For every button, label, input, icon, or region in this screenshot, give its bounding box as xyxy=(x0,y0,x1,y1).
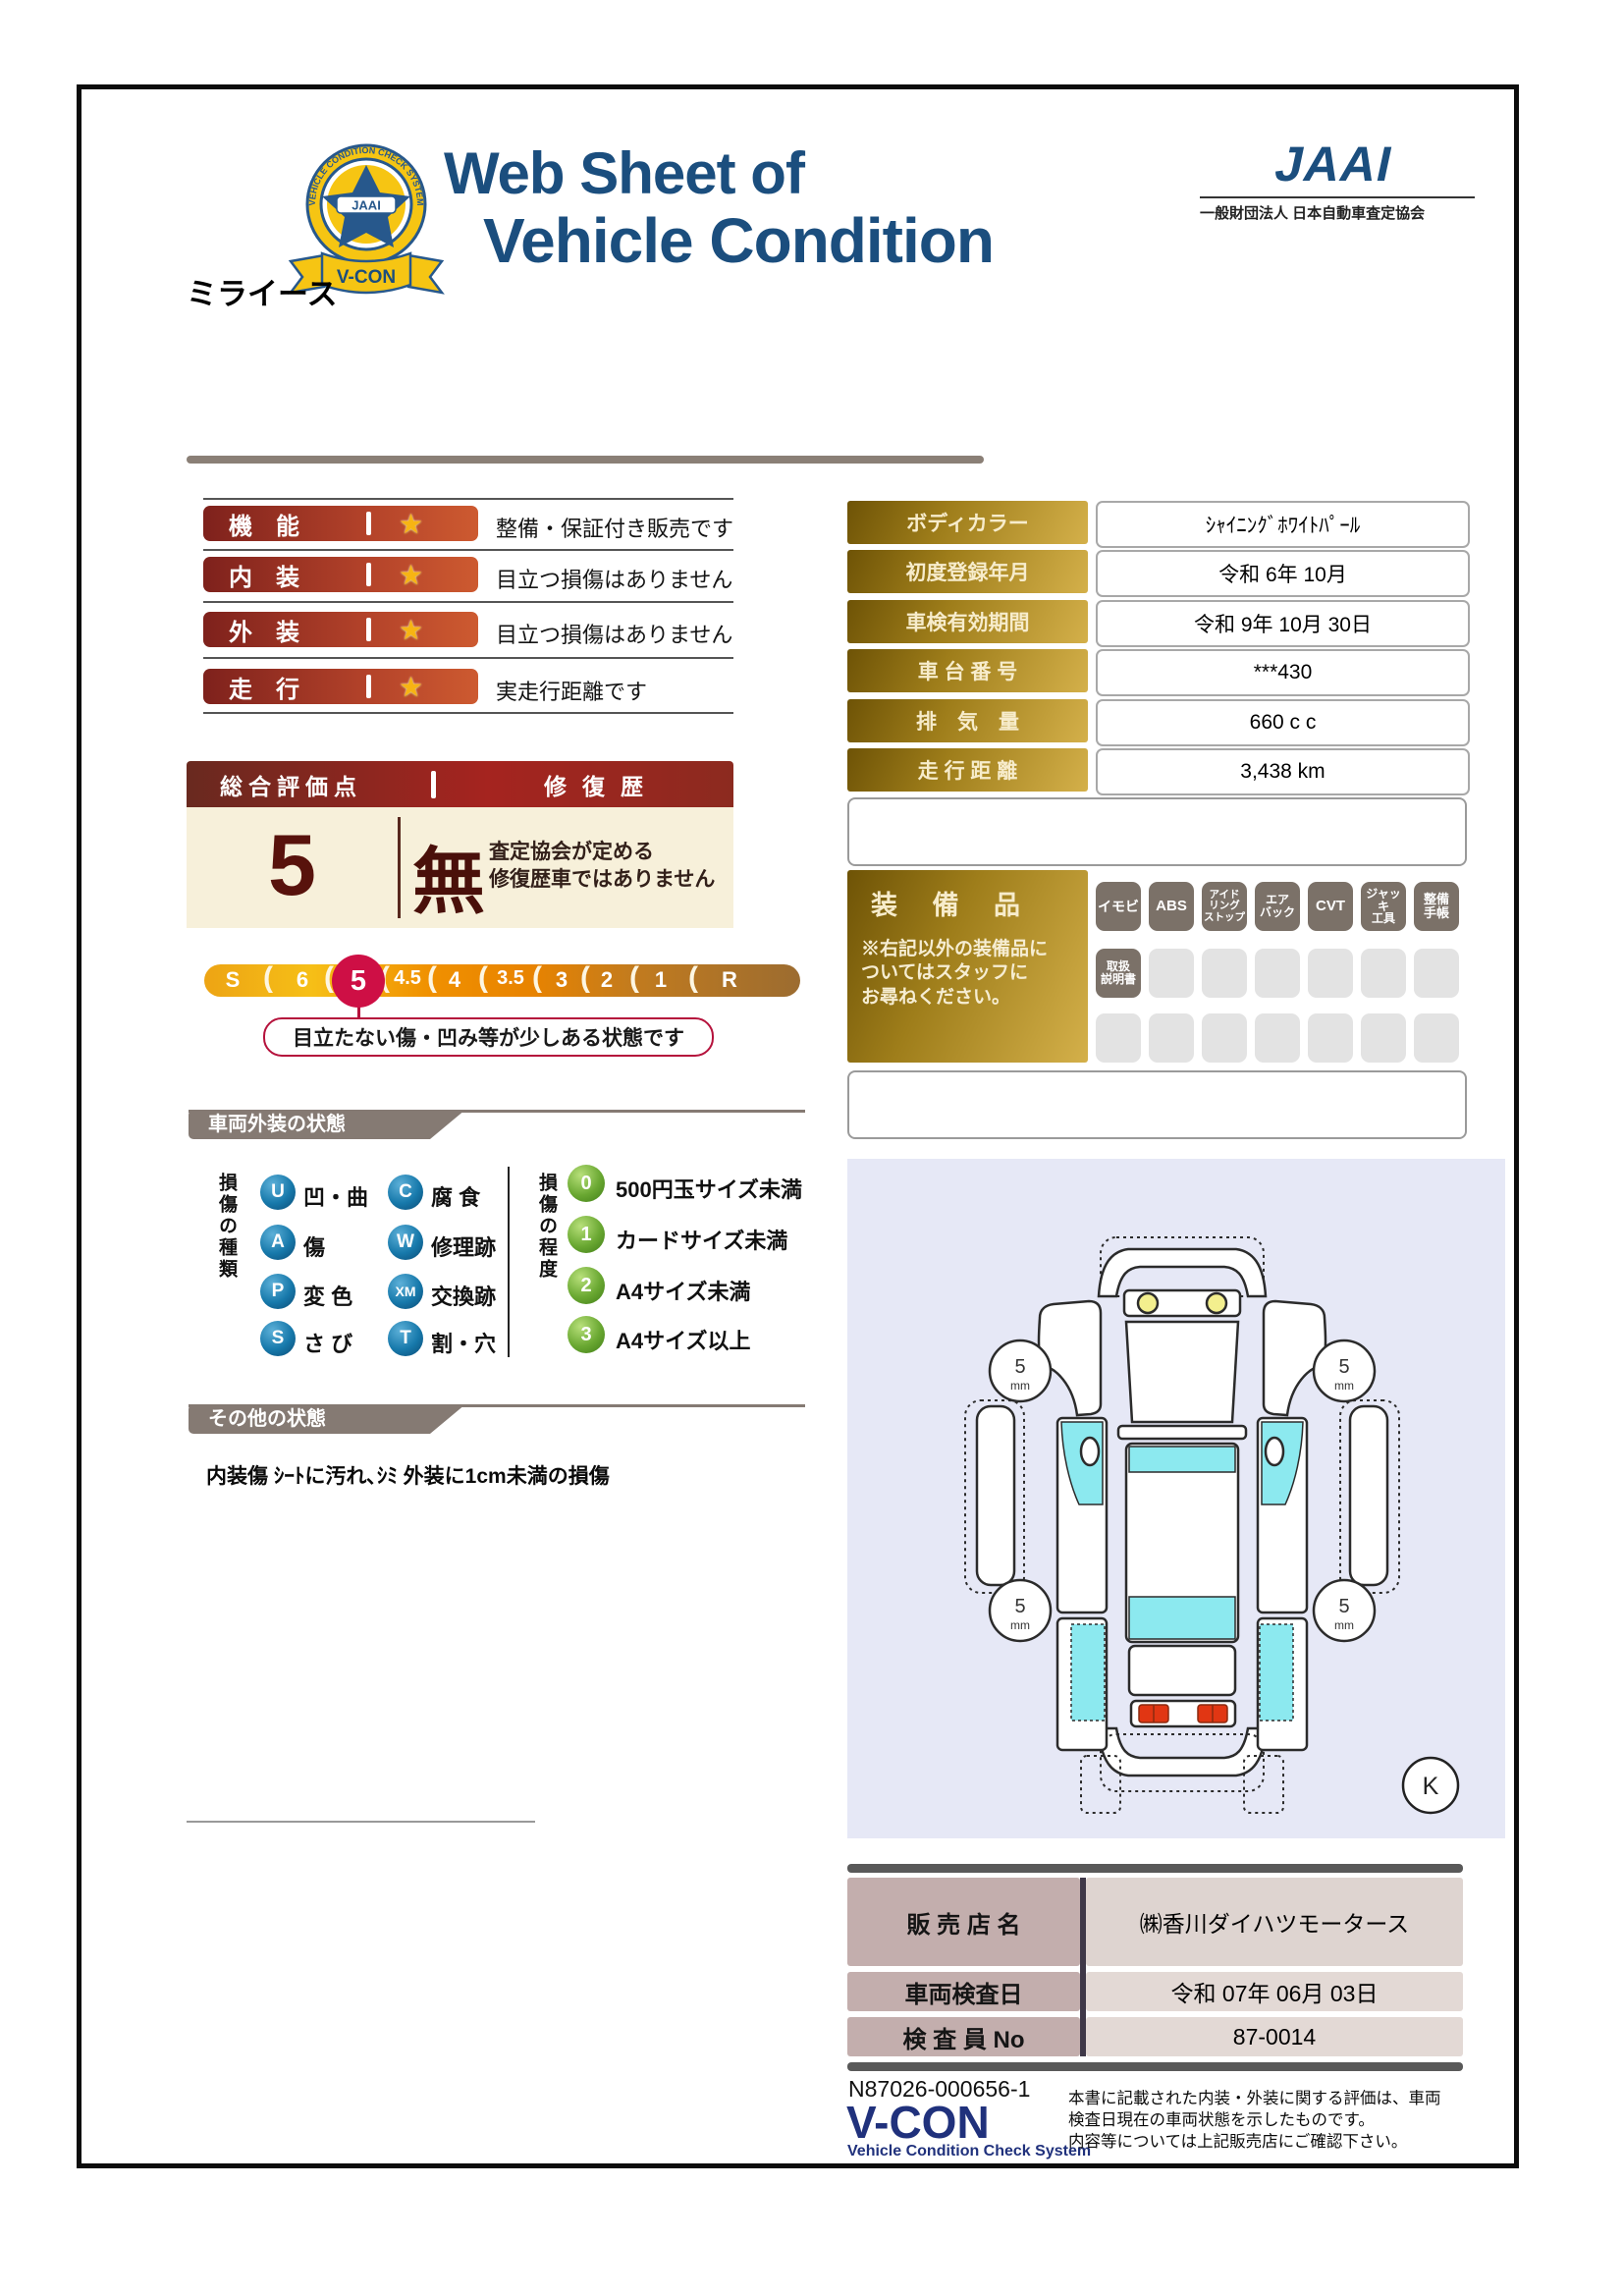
damage-type-badge-u: U xyxy=(260,1175,296,1210)
wheel-depth-unit: mm xyxy=(1334,1379,1354,1393)
damage-type-badge-c: C xyxy=(388,1175,423,1210)
dealer-table-bottom-bar xyxy=(847,2062,1463,2071)
spec-label-mileage: 走 行 距 離 xyxy=(847,748,1088,792)
rating-label: 機 能 xyxy=(203,507,347,541)
other-section-header: その他の状態 xyxy=(189,1404,465,1434)
spec-label-displacement: 排 気 量 xyxy=(847,699,1088,742)
repair-history-label: 修復歴 xyxy=(544,768,659,801)
equipment-chip-idling-stop: アイド リング ストップ xyxy=(1202,882,1247,931)
star-icon: ★ xyxy=(399,559,423,591)
grade-scale-bar: S ( 6 ( ( 4.5 ( 4 ( 3.5 ( 3 ( 2 ( 1 ( R xyxy=(204,964,800,997)
damage-degree-label: カードサイズ未満 xyxy=(616,1224,787,1255)
damage-type-badge-t: T xyxy=(388,1321,423,1356)
rating-comment: 目立つ損傷はありません xyxy=(496,618,732,649)
equipment-chip-empty xyxy=(1255,949,1300,998)
damage-degree-badge-3: 3 xyxy=(568,1316,605,1353)
damage-type-label: 修理跡 xyxy=(431,1230,496,1262)
damage-type-badge-w: W xyxy=(388,1225,423,1260)
equipment-chip-empty xyxy=(1149,949,1194,998)
spec-empty-row xyxy=(847,1070,1467,1139)
vcon-logo-subtitle: Vehicle Condition Check System xyxy=(847,2143,1091,2160)
key-marker-label: K xyxy=(1423,1773,1439,1800)
divider-bar xyxy=(366,563,371,586)
damage-type-label: 凹・曲 xyxy=(303,1180,368,1212)
scale-grade-r: R xyxy=(722,967,737,993)
repair-history-value: 無 xyxy=(412,823,485,928)
damage-degree-label: A4サイズ未満 xyxy=(616,1275,750,1306)
divider-bar xyxy=(366,512,371,535)
equipment-chip-jack-tools: ジャッキ 工具 xyxy=(1361,882,1406,931)
scale-separator: ( xyxy=(629,961,639,995)
rating-pill-function: 機 能 ★ xyxy=(203,506,478,541)
equipment-chip-empty xyxy=(1361,1013,1406,1063)
damage-degree-badge-1: 1 xyxy=(568,1216,605,1253)
scale-separator: ( xyxy=(688,961,698,995)
damage-type-label: 傷 xyxy=(303,1230,325,1262)
equipment-chip-immobilizer: イモビ xyxy=(1096,882,1141,931)
rating-separator xyxy=(203,657,733,659)
page-title-line2: Vehicle Condition xyxy=(483,204,994,277)
scale-grade-s: S xyxy=(226,967,241,993)
wheel-depth-unit: mm xyxy=(1334,1618,1354,1632)
wheel-depth-value: 5 xyxy=(1014,1596,1025,1617)
equipment-chip-empty xyxy=(1308,1013,1353,1063)
overall-score-value: 5 xyxy=(187,815,398,915)
wheel-depth-unit: mm xyxy=(1010,1618,1030,1632)
dealer-name-label: 販 売 店 名 xyxy=(847,1878,1080,1966)
dealer-table-top-bar xyxy=(847,1864,1463,1873)
score-header: 総合評価点 修復歴 xyxy=(187,761,733,807)
inspector-number-label: 検 査 員 No xyxy=(847,2017,1080,2056)
damage-type-badge-a: A xyxy=(260,1225,296,1260)
rating-pill-interior: 内 装 ★ xyxy=(203,557,478,592)
rating-separator xyxy=(203,601,733,603)
spec-empty-row xyxy=(847,797,1467,866)
divider-bar xyxy=(431,771,436,798)
equipment-chip-empty xyxy=(1308,949,1353,998)
scale-grade-4: 4 xyxy=(449,967,460,993)
repair-history-note: 査定協会が定める 修復歴車ではありません xyxy=(489,839,715,893)
rating-separator xyxy=(203,549,733,551)
equipment-chip-empty xyxy=(1255,1013,1300,1063)
equipment-note: ※右記以外の装備品に ついてはスタッフに お尋ねください。 xyxy=(847,922,1088,1010)
scale-grade-2: 2 xyxy=(601,967,613,993)
badge-jaai-label: JAAI xyxy=(352,198,381,213)
rating-comment: 目立つ損傷はありません xyxy=(496,563,732,594)
selected-grade-marker: 5 xyxy=(332,955,385,1008)
legend-divider xyxy=(508,1167,510,1357)
scale-separator: ( xyxy=(263,961,273,995)
damage-degrees-title: 損傷の程度 xyxy=(533,1173,560,1281)
spec-value-chassis-number: ***430 xyxy=(1096,649,1470,696)
damage-degree-label: 500円玉サイズ未満 xyxy=(616,1173,802,1204)
scale-separator: ( xyxy=(427,961,437,995)
spec-value-first-registration: 令和 6年 10月 xyxy=(1096,550,1470,597)
vehicle-condition-sheet: VEHICLE CONDITION CHECK SYSTEM JAAI V-CO… xyxy=(0,0,1623,2296)
car-damage-diagram: 5 mm 5 mm 5 mm 5 mm K xyxy=(847,1159,1505,1838)
scale-separator: ( xyxy=(478,961,488,995)
inspection-date-label: 車両検査日 xyxy=(847,1972,1080,2011)
wheel-depth-unit: mm xyxy=(1010,1379,1030,1393)
damage-degree-badge-0: 0 xyxy=(568,1165,605,1202)
rating-label: 走 行 xyxy=(203,670,347,704)
damage-degree-label: A4サイズ以上 xyxy=(616,1324,750,1355)
divider-bar xyxy=(366,675,371,698)
rating-separator xyxy=(203,498,733,500)
damage-type-label: さ び xyxy=(303,1327,352,1358)
spec-value-body-color: ｼｬｲﾆﾝｸﾞﾎﾜｲﾄﾊﾟｰﾙ xyxy=(1096,501,1470,548)
scale-separator: ( xyxy=(580,961,590,995)
equipment-chip-empty xyxy=(1361,949,1406,998)
rating-comment: 実走行距離です xyxy=(496,675,647,706)
disclaimer-text: 本書に記載された内装・外装に関する評価は、車両 検査日現在の車両状態を示したもの… xyxy=(1068,2088,1471,2153)
rating-label: 内 装 xyxy=(203,558,347,592)
damage-type-badge-p: P xyxy=(260,1274,296,1309)
jaai-logo: JAAI xyxy=(1271,136,1398,192)
divider-bar xyxy=(398,817,401,918)
inspection-date-value: 令和 07年 06月 03日 xyxy=(1086,1972,1463,2011)
vcon-logo: V-CON xyxy=(846,2096,990,2149)
damage-type-label: 割・穴 xyxy=(431,1327,496,1358)
scale-grade-1: 1 xyxy=(655,967,667,993)
inspector-number-value: 87-0014 xyxy=(1086,2017,1463,2056)
dealer-name-value: ㈱香川ダイハツモータース xyxy=(1086,1878,1463,1966)
spec-value-displacement: 660 c c xyxy=(1096,699,1470,746)
spec-value-mileage: 3,438 km xyxy=(1096,748,1470,795)
wheel-depth-value: 5 xyxy=(1338,1596,1349,1617)
rating-separator xyxy=(203,712,733,714)
spec-label-first-registration: 初度登録年月 xyxy=(847,550,1088,593)
equipment-chip-owners-manual: 取扱 説明書 xyxy=(1096,949,1141,998)
equipment-label-box: 装 備 品 ※右記以外の装備品に ついてはスタッフに お尋ねください。 xyxy=(847,870,1088,1063)
damage-degree-badge-2: 2 xyxy=(568,1267,605,1304)
spec-value-inspection-validity: 令和 9年 10月 30日 xyxy=(1096,600,1470,647)
damage-types-title: 損傷の種類 xyxy=(213,1173,240,1281)
damage-type-label: 腐 食 xyxy=(431,1180,480,1212)
wheel-depth-value: 5 xyxy=(1338,1356,1349,1378)
rating-pill-exterior: 外 装 ★ xyxy=(203,612,478,647)
left-column-rule xyxy=(187,1821,535,1823)
grade-callout: 目立たない傷・凹み等が少しある状態です xyxy=(263,1017,714,1057)
equipment-chip-empty xyxy=(1202,1013,1247,1063)
page-title-line1: Web Sheet of xyxy=(444,139,804,207)
equipment-title: 装 備 品 xyxy=(847,870,1088,922)
equipment-chip-empty xyxy=(1096,1013,1141,1063)
score-body: 5 無 査定協会が定める 修復歴車ではありません xyxy=(187,807,733,928)
spec-label-inspection-validity: 車検有効期間 xyxy=(847,600,1088,643)
rating-pill-mileage: 走 行 ★ xyxy=(203,669,478,704)
badge-ribbon-label: V-CON xyxy=(337,267,396,288)
spec-label-body-color: ボディカラー xyxy=(847,501,1088,544)
equipment-chip-cvt: CVT xyxy=(1308,882,1353,931)
scale-grade-4-5: 4.5 xyxy=(394,967,421,990)
divider-bar xyxy=(187,456,984,464)
dealer-table-divider xyxy=(1080,1878,1086,2056)
scale-grade-3: 3 xyxy=(556,967,568,993)
damage-type-label: 変 色 xyxy=(303,1280,352,1311)
rating-comment: 整備・保証付き販売です xyxy=(496,512,733,543)
equipment-chip-abs: ABS xyxy=(1149,882,1194,931)
equipment-chip-empty xyxy=(1149,1013,1194,1063)
exterior-section-header: 車両外装の状態 xyxy=(189,1110,465,1139)
damage-type-badge-s: S xyxy=(260,1321,296,1356)
score-header-label: 総合評価点 xyxy=(187,768,362,801)
equipment-chip-service-record: 整備 手帳 xyxy=(1414,882,1459,931)
scale-separator: ( xyxy=(532,961,542,995)
scale-grade-6: 6 xyxy=(297,967,308,993)
damage-type-label: 交換跡 xyxy=(431,1280,496,1311)
divider-bar xyxy=(366,618,371,641)
rating-label: 外 装 xyxy=(203,613,347,647)
spec-label-chassis-number: 車 台 番 号 xyxy=(847,649,1088,692)
other-condition-text: 内装傷 ｼｰﾄに汚れ､ｼﾐ 外装に1cm未満の損傷 xyxy=(206,1460,610,1490)
equipment-chip-empty xyxy=(1414,1013,1459,1063)
vehicle-name: ミライース xyxy=(187,269,337,313)
equipment-chip-airbag: エア バック xyxy=(1255,882,1300,931)
wheel-depth-value: 5 xyxy=(1014,1356,1025,1378)
damage-type-badge-xm: XM xyxy=(388,1274,423,1309)
star-icon: ★ xyxy=(399,508,423,540)
jaai-subtitle: 一般財団法人 日本自動車査定協会 xyxy=(1200,196,1475,223)
scale-grade-3-5: 3.5 xyxy=(497,967,524,990)
equipment-chip-empty xyxy=(1414,949,1459,998)
star-icon: ★ xyxy=(399,671,423,703)
selected-grade-value: 5 xyxy=(351,965,366,998)
equipment-chip-empty xyxy=(1202,949,1247,998)
star-icon: ★ xyxy=(399,614,423,646)
